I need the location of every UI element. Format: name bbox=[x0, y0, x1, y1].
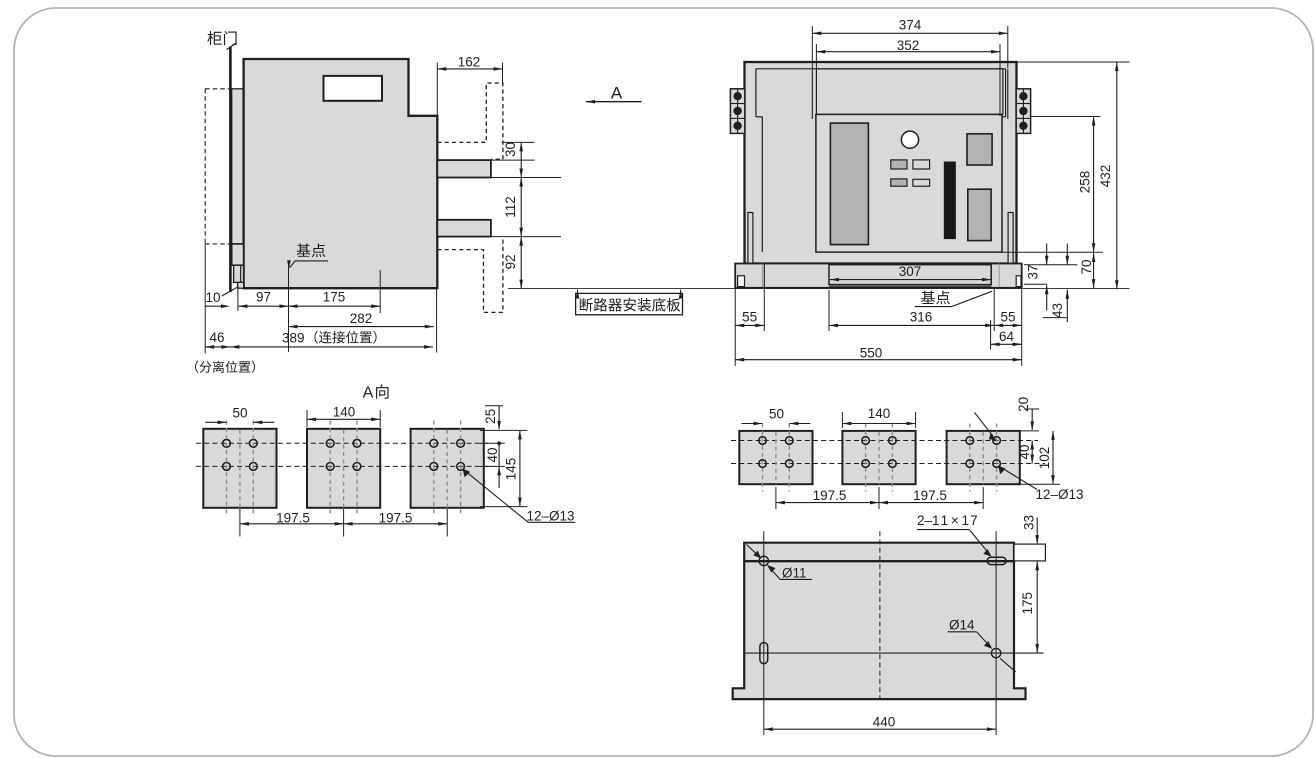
svg-text:112: 112 bbox=[503, 196, 518, 218]
svg-text:197.5: 197.5 bbox=[276, 510, 310, 525]
svg-text:92: 92 bbox=[503, 254, 518, 269]
svg-text:307: 307 bbox=[899, 264, 922, 279]
svg-text:197.5: 197.5 bbox=[379, 510, 413, 525]
svg-text:Ø11: Ø11 bbox=[782, 565, 807, 580]
svg-text:33: 33 bbox=[1021, 515, 1036, 530]
svg-text:97: 97 bbox=[256, 290, 271, 305]
svg-text:389: 389 bbox=[282, 330, 305, 345]
svg-text:145: 145 bbox=[503, 458, 518, 481]
svg-text:140: 140 bbox=[868, 406, 891, 421]
svg-text:30: 30 bbox=[503, 142, 518, 157]
svg-text:197.5: 197.5 bbox=[813, 488, 847, 503]
svg-text:25: 25 bbox=[483, 409, 498, 424]
svg-text:550: 550 bbox=[860, 346, 883, 361]
svg-text:50: 50 bbox=[232, 406, 247, 421]
svg-text:12–Ø13: 12–Ø13 bbox=[527, 508, 575, 523]
svg-text:2–1 1 × 1 7: 2–1 1 × 1 7 bbox=[917, 513, 978, 528]
svg-text:175: 175 bbox=[1020, 592, 1035, 615]
svg-text:A: A bbox=[363, 385, 374, 402]
svg-text:70: 70 bbox=[1079, 259, 1094, 274]
svg-text:10: 10 bbox=[205, 290, 220, 305]
svg-text:352: 352 bbox=[897, 38, 920, 53]
svg-text:102: 102 bbox=[1037, 447, 1052, 470]
svg-text:175: 175 bbox=[323, 290, 346, 305]
svg-text:43: 43 bbox=[1050, 303, 1065, 318]
svg-text:282: 282 bbox=[350, 311, 373, 326]
svg-text:46: 46 bbox=[209, 330, 224, 345]
svg-text:20: 20 bbox=[1016, 397, 1031, 412]
svg-text:40: 40 bbox=[1017, 444, 1032, 459]
svg-text:197.5: 197.5 bbox=[913, 488, 947, 503]
svg-text:64: 64 bbox=[999, 329, 1015, 344]
svg-text:162: 162 bbox=[458, 55, 481, 70]
svg-text:37: 37 bbox=[1026, 264, 1041, 279]
svg-text:Ø14: Ø14 bbox=[949, 618, 975, 633]
svg-text:50: 50 bbox=[769, 407, 784, 422]
svg-text:432: 432 bbox=[1098, 165, 1113, 188]
svg-text:440: 440 bbox=[873, 714, 896, 729]
svg-text:12–Ø13: 12–Ø13 bbox=[1036, 487, 1084, 502]
svg-text:140: 140 bbox=[333, 405, 356, 420]
svg-text:A: A bbox=[611, 84, 623, 103]
svg-text:316: 316 bbox=[910, 310, 933, 325]
svg-text:55: 55 bbox=[742, 310, 757, 325]
svg-text:374: 374 bbox=[899, 18, 922, 33]
svg-text:258: 258 bbox=[1078, 171, 1093, 194]
svg-text:40: 40 bbox=[485, 447, 500, 462]
svg-text:55: 55 bbox=[1000, 310, 1015, 325]
